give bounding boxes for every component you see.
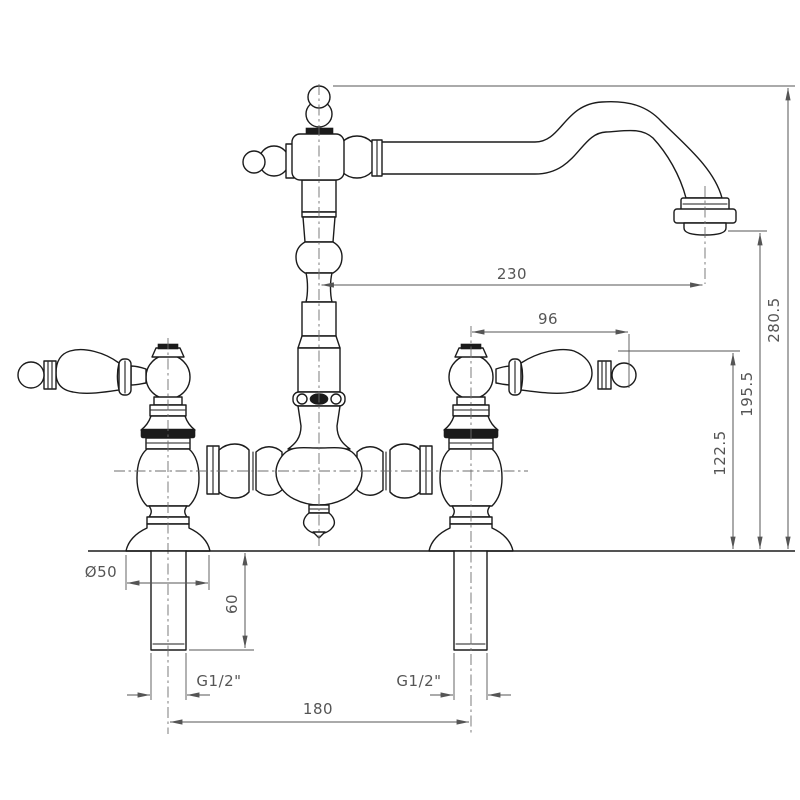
side-knob-ball: [243, 151, 265, 173]
dimension-left-thread: G1/2": [127, 653, 242, 700]
centerlines: [114, 84, 705, 734]
dim-right-thread-label: G1/2": [396, 672, 441, 690]
dimension-right-thread: G1/2": [396, 653, 511, 700]
column-top: [243, 86, 382, 180]
dim-inlet-centres-label: 180: [303, 700, 333, 718]
spout-tube: [380, 102, 722, 198]
pearl-left: [297, 394, 307, 404]
dimension-handle-height: 122.5: [618, 351, 740, 549]
dimension-shank-length: 60: [189, 553, 254, 650]
finial-base-band: [306, 128, 333, 134]
dimension-inlet-centres: 180: [170, 700, 469, 722]
technical-drawing-page: 230 96 280.5 195.5 122.5 Ø50: [0, 0, 800, 800]
faucet-technical-drawing: 230 96 280.5 195.5 122.5 Ø50: [0, 0, 800, 800]
left-lever-ball: [18, 362, 44, 388]
right-lever: [521, 350, 592, 394]
dim-outlet-height-label: 195.5: [738, 371, 756, 416]
right-shank: [454, 551, 487, 650]
dim-handle-height-label: 122.5: [711, 430, 729, 475]
left-shank: [151, 551, 186, 650]
right-lever-nut: [598, 361, 611, 389]
dimension-outlet-height: 195.5: [728, 231, 767, 549]
pearl-right: [331, 394, 341, 404]
spout: [380, 102, 736, 235]
dim-overall-height-label: 280.5: [765, 297, 783, 342]
dimension-flange-diameter: Ø50: [85, 555, 209, 590]
left-lever: [56, 350, 119, 394]
tee-body: [292, 134, 344, 180]
dim-left-thread-label: G1/2": [196, 672, 241, 690]
left-lever-neck: [131, 366, 146, 385]
dim-handle-length-label: 96: [538, 310, 558, 328]
dim-spout-reach-label: 230: [497, 265, 527, 283]
left-lever-nut: [44, 361, 56, 389]
dimension-spout-reach: 230: [322, 265, 703, 285]
inlet-shanks: [151, 551, 487, 650]
dim-shank-length-label: 60: [223, 594, 241, 614]
dim-flange-diameter-label: Ø50: [85, 563, 117, 581]
right-lever-ball: [612, 363, 636, 387]
right-handle: [496, 350, 636, 395]
left-handle: [18, 350, 146, 395]
